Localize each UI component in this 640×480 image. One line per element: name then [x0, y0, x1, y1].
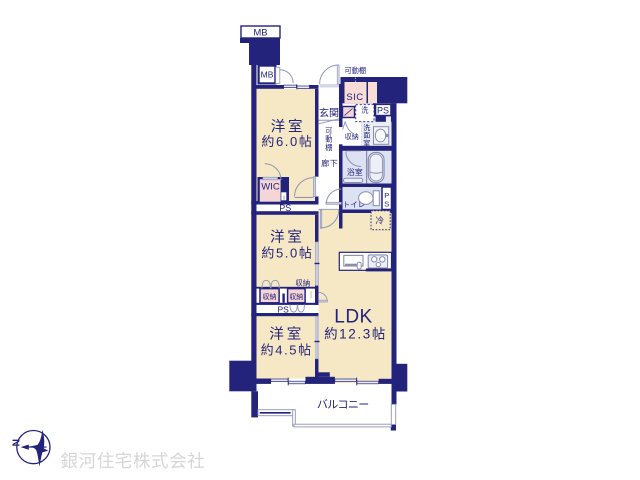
- svg-text:トイレ: トイレ: [343, 200, 366, 209]
- svg-text:面: 面: [363, 132, 370, 140]
- svg-text:PS: PS: [278, 304, 290, 314]
- svg-text:S: S: [384, 199, 389, 208]
- svg-text:銀河住宅株式会社: 銀河住宅株式会社: [61, 451, 206, 471]
- svg-text:MB: MB: [253, 28, 267, 39]
- svg-text:廊: 廊: [321, 158, 329, 168]
- svg-text:洋室: 洋室: [269, 326, 304, 343]
- svg-text:冷: 冷: [376, 215, 385, 225]
- svg-text:可動棚: 可動棚: [345, 66, 367, 75]
- svg-text:収納: 収納: [263, 292, 277, 301]
- svg-text:PS: PS: [279, 203, 291, 213]
- svg-text:SIC: SIC: [346, 92, 363, 103]
- svg-text:棚: 棚: [325, 143, 332, 152]
- svg-text:浴室: 浴室: [347, 167, 363, 177]
- svg-text:WIC: WIC: [261, 181, 280, 192]
- svg-text:洋室: 洋室: [271, 118, 306, 135]
- svg-text:玄関: 玄関: [319, 107, 339, 120]
- svg-text:約6.0帖: 約6.0帖: [261, 134, 313, 149]
- svg-text:洗: 洗: [363, 123, 370, 132]
- svg-text:収納: 収納: [289, 292, 303, 301]
- svg-text:約5.0帖: 約5.0帖: [261, 245, 313, 260]
- svg-text:MB: MB: [261, 70, 274, 80]
- svg-text:N: N: [11, 439, 23, 447]
- svg-text:PS: PS: [377, 106, 389, 116]
- svg-text:収納: 収納: [295, 277, 310, 287]
- svg-text:室: 室: [363, 138, 370, 147]
- svg-text:下: 下: [330, 159, 338, 168]
- svg-text:バルコニー: バルコニー: [317, 398, 369, 411]
- svg-text:収納: 収納: [345, 132, 359, 141]
- svg-text:約4.5帖: 約4.5帖: [261, 342, 313, 357]
- svg-text:洋室: 洋室: [270, 229, 305, 246]
- svg-text:約12.3帖: 約12.3帖: [324, 326, 387, 341]
- svg-text:LDK: LDK: [334, 307, 372, 328]
- svg-text:洗: 洗: [361, 105, 368, 114]
